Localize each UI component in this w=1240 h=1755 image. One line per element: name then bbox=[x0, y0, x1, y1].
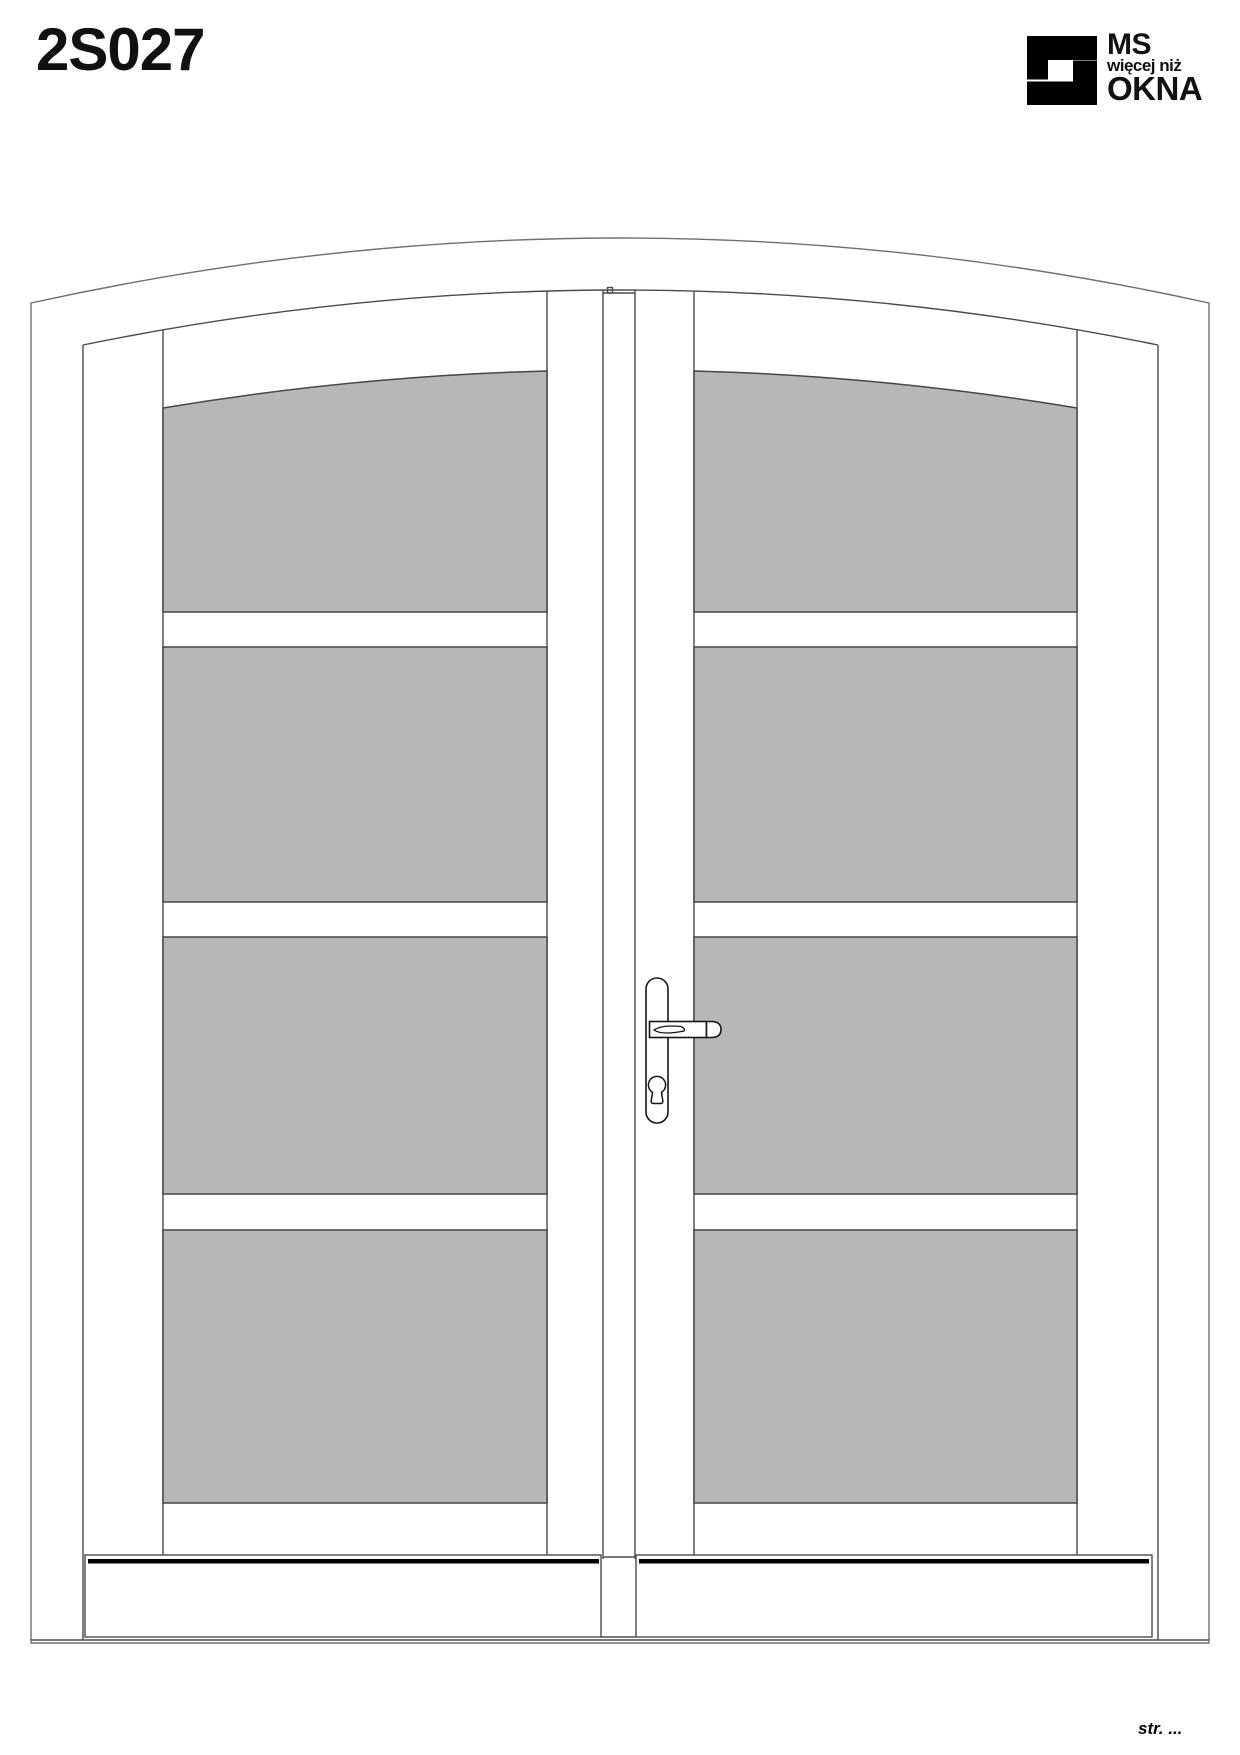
left-kick-panel bbox=[85, 1555, 601, 1637]
glass-panel bbox=[163, 371, 547, 612]
glass-panel bbox=[163, 647, 547, 902]
keyhole-icon bbox=[648, 1076, 665, 1103]
door-technical-drawing bbox=[0, 0, 1240, 1755]
left-kick-panel-groove bbox=[88, 1559, 599, 1564]
left-leaf-glazing bbox=[163, 371, 547, 1503]
glass-panel bbox=[694, 647, 1077, 902]
glass-panel bbox=[694, 937, 1077, 1194]
right-kick-panel bbox=[636, 1555, 1152, 1637]
glass-panel bbox=[694, 1230, 1077, 1503]
right-kick-panel-groove bbox=[639, 1559, 1149, 1564]
glass-panel bbox=[163, 937, 547, 1194]
right-leaf-glazing bbox=[694, 371, 1077, 1503]
handle-lever-end-cap bbox=[707, 1022, 722, 1038]
footer-page-label: str. ... bbox=[1138, 1719, 1182, 1739]
glass-panel bbox=[163, 1230, 547, 1503]
glass-panel bbox=[694, 371, 1077, 612]
